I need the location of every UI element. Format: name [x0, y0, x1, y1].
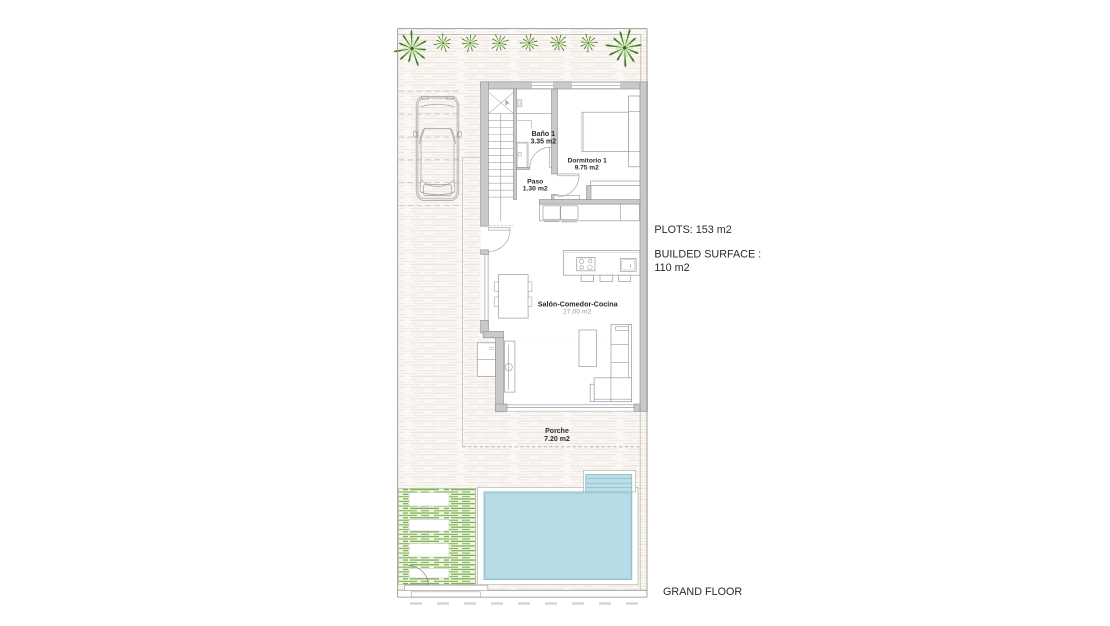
svg-text:110 m2: 110 m2: [654, 262, 689, 274]
svg-text:Salón-Comedor-Cocina: Salón-Comedor-Cocina: [538, 299, 619, 308]
svg-text:9.75 m2: 9.75 m2: [575, 165, 600, 172]
svg-text:1.30 m2: 1.30 m2: [523, 185, 548, 192]
svg-text:BUILDED SURFACE :: BUILDED SURFACE :: [654, 249, 761, 261]
svg-text:Porche: Porche: [545, 428, 569, 435]
svg-text:3.35 m2: 3.35 m2: [530, 139, 556, 146]
svg-text:Dormitorio 1: Dormitorio 1: [568, 157, 608, 164]
svg-text:Baño 1: Baño 1: [532, 131, 555, 138]
svg-text:GRAND FLOOR: GRAND FLOOR: [663, 586, 742, 598]
svg-text:Paso: Paso: [527, 178, 543, 185]
svg-text:PLOTS: 153 m2: PLOTS: 153 m2: [654, 224, 731, 236]
svg-text:7.20 m2: 7.20 m2: [544, 436, 570, 443]
svg-text:27,00 m2: 27,00 m2: [563, 308, 592, 315]
